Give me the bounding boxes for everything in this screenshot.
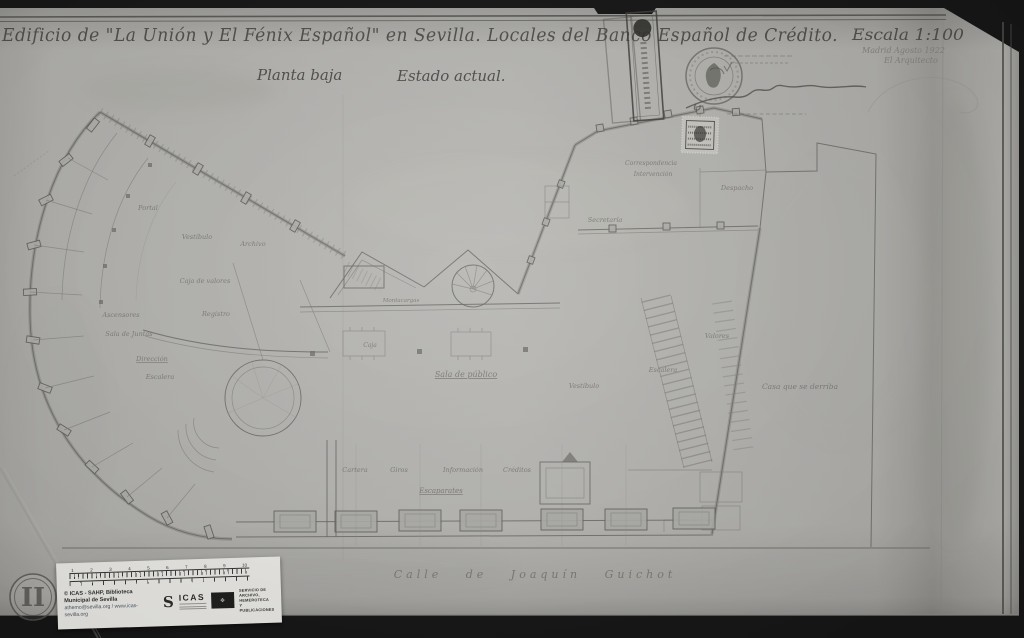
room-label: Registro [201, 310, 230, 318]
room-label: Sala de público [435, 370, 498, 379]
ruler-number: 4 [128, 566, 131, 571]
service-line: Y PUBLICACIONES [239, 601, 274, 612]
street-label: Calle de Joaquín Guichot [394, 568, 677, 581]
scale-label: Escala 1:100 [851, 26, 964, 44]
ayuntamiento-logo-icon: ❖ [211, 592, 235, 609]
room-label: Información [442, 466, 483, 474]
subtitle-state: Estado actual. [396, 67, 506, 85]
ruler-number: 9 [223, 563, 226, 568]
room-label: Vestíbulo [569, 382, 599, 390]
architect-line: El Arquitecto [883, 56, 938, 65]
room-label: Créditos [503, 466, 532, 474]
room-label: Secretaría [588, 216, 623, 224]
scan-canvas: PortalVestíbuloArchivoCaja de valoresAsc… [0, 0, 1024, 638]
folio-mark: II [10, 574, 56, 620]
place-date: Madrid Agosto 1922 [861, 46, 945, 55]
svg-text:II: II [21, 583, 45, 613]
room-label: Intervención [633, 171, 673, 178]
room-label: Escalera [145, 373, 175, 381]
sheet-title: Edificio de "La Unión y El Fénix Español… [1, 26, 838, 46]
room-label: Despacho [720, 184, 753, 192]
room-label: Valores [705, 332, 730, 340]
subtitle-plan: Planta baja [256, 66, 342, 84]
ruler-number: 2 [90, 567, 93, 572]
photo-scale-ruler: 12345678910 [69, 562, 251, 586]
scanned-floorplan-document: PortalVestíbuloArchivoCaja de valoresAsc… [0, 0, 1024, 638]
archive-sticker: 12345678910 © ICAS - SAHP, Biblioteca Mu… [56, 556, 282, 629]
room-label: Escalera [648, 366, 678, 374]
room-label: Caja de valores [180, 277, 231, 285]
ruler-number: 10 [242, 563, 247, 568]
room-label: Giros [390, 466, 408, 474]
room-label: Montacargas [382, 298, 420, 304]
room-label: Cartera [342, 466, 368, 474]
ruler-number: 1 [71, 568, 74, 573]
fiscal-stamp [681, 116, 718, 153]
room-label: Sala de Juntas [105, 330, 153, 338]
ruler-number: 3 [109, 567, 112, 572]
room-label: Archivo [239, 240, 265, 248]
room-label: Dirección [135, 355, 168, 363]
room-label: Portal [137, 204, 158, 212]
icas-wordmark: ICAS [179, 593, 206, 603]
ruler-number: 7 [185, 564, 188, 569]
room-label: Caja [363, 342, 377, 349]
contact-line: athemo@sevilla.org / www.icas-sevilla.or… [64, 602, 158, 619]
room-label: Vestíbulo [182, 233, 212, 241]
ruler-number: 8 [204, 564, 207, 569]
ruler-number: 6 [166, 565, 169, 570]
room-label: Escaparates [418, 487, 463, 495]
room-label: Correspondencia [625, 160, 677, 167]
room-label: Casa que se derriba [762, 382, 838, 391]
logo-subline [179, 608, 206, 610]
ruler-number: 5 [147, 566, 150, 571]
icas-s-logo-icon: S [163, 595, 174, 609]
room-label: Ascensores [101, 311, 140, 319]
